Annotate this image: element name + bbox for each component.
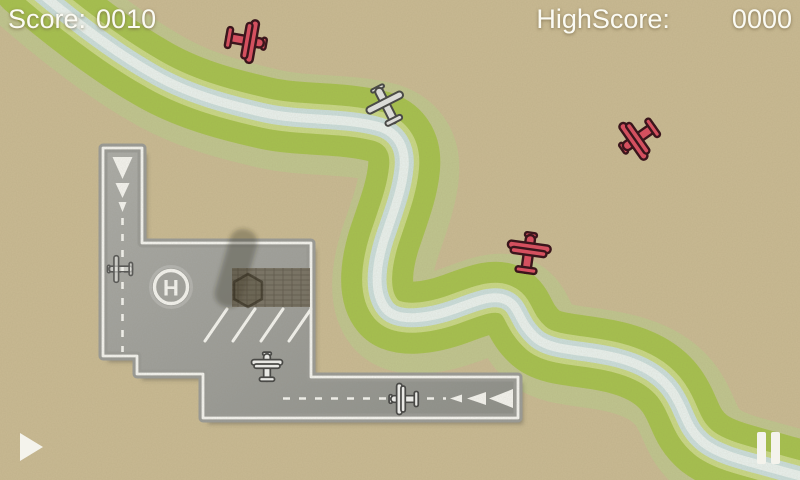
game-screen: H [0,0,800,480]
pause-icon [757,432,766,464]
pause-icon [771,432,780,464]
game-map[interactable]: H [0,0,800,480]
